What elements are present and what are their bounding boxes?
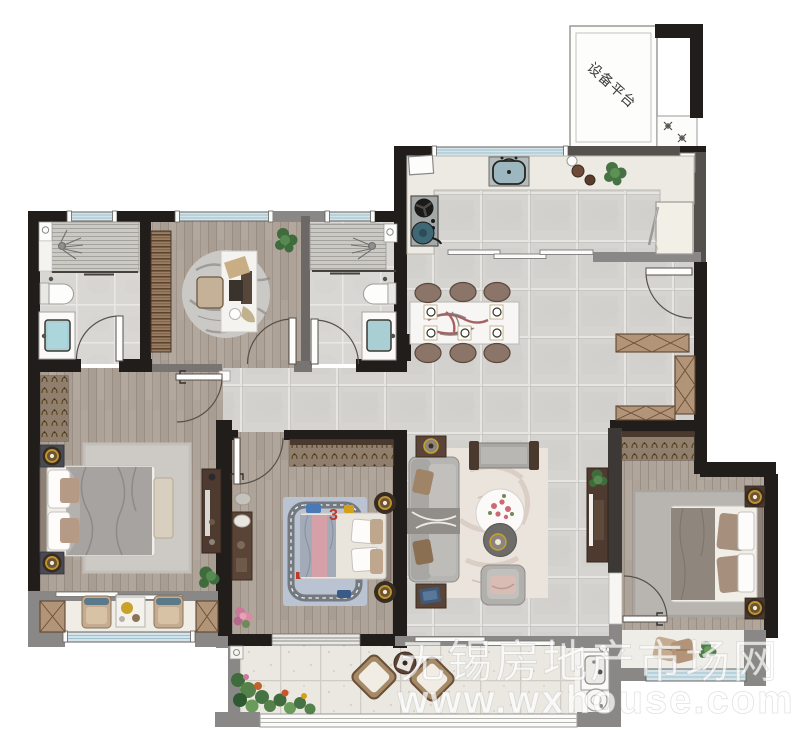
svg-text:3: 3 (329, 507, 338, 524)
svg-text:www.wxhouse.com: www.wxhouse.com (396, 678, 794, 722)
